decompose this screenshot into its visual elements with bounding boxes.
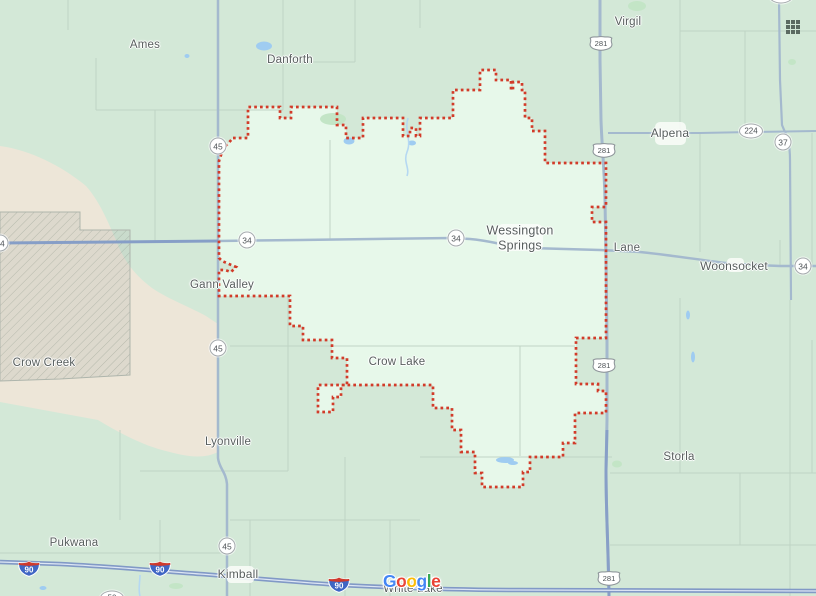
hatched-area	[0, 212, 130, 381]
map-canvas[interactable]	[0, 0, 816, 596]
apps-grid-cell	[786, 25, 790, 29]
google-logo-letter: G	[383, 571, 396, 591]
google-logo-letter: o	[406, 571, 416, 591]
map-viewport[interactable]: AmesDanforthVirgilAlpenaWessingtonSpring…	[0, 0, 816, 596]
apps-grid-cell	[791, 20, 795, 24]
google-logo-letter: e	[431, 571, 440, 591]
apps-grid-cell	[796, 25, 800, 29]
apps-grid-cell	[786, 20, 790, 24]
apps-grid-cell	[791, 25, 795, 29]
apps-grid-cell	[796, 20, 800, 24]
apps-grid-icon[interactable]	[786, 20, 800, 34]
apps-grid-cell	[796, 30, 800, 34]
google-logo[interactable]: Google	[383, 571, 440, 592]
google-logo-letter: g	[417, 571, 427, 591]
apps-grid-cell	[791, 30, 795, 34]
road-34-west	[0, 241, 218, 243]
google-logo-letter: o	[396, 571, 406, 591]
apps-grid-cell	[786, 30, 790, 34]
